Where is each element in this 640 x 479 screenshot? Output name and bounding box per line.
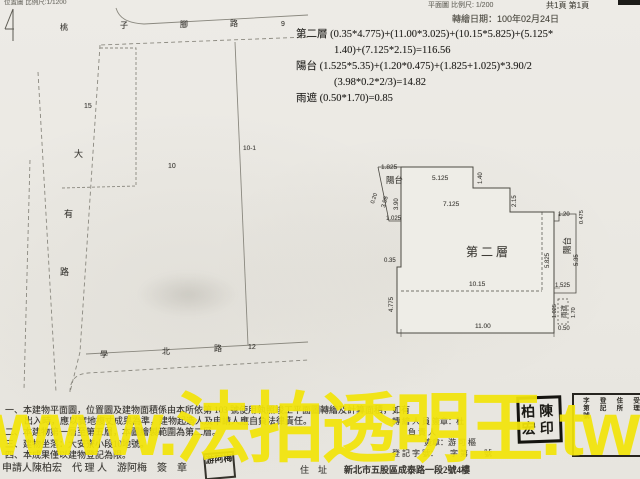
site-plan-label: 9 xyxy=(281,21,285,28)
scan-smudge xyxy=(138,272,238,317)
site-plan-label: 10-1 xyxy=(243,146,256,153)
dimension-label: 0.50 xyxy=(558,326,570,332)
dimension-label: 2.15 xyxy=(512,195,518,207)
dimension-label: 1.20 xyxy=(558,212,570,218)
dimension-label: 4.775 xyxy=(389,297,395,312)
transcribe-date: 轉繪日期：100年02月24日 xyxy=(452,15,559,24)
dimension-label: 7.125 xyxy=(443,202,459,209)
dimension-label: 5.125 xyxy=(432,176,448,183)
dimension-label: 1.825 xyxy=(381,165,397,172)
dimension-label: 1.025 xyxy=(386,216,401,222)
site-plan-scale: 位置圖 比例尺:1/1200 xyxy=(4,0,67,7)
site-plan-label: 桃 xyxy=(60,24,68,32)
dimension-label: 1.025 xyxy=(553,304,559,318)
site-plan-label: 腳 xyxy=(180,21,188,29)
dimension-label: 5.825 xyxy=(545,253,551,268)
floor-plan-scale: 平面圖 比例尺: 1/200 xyxy=(428,2,493,9)
dimension-label: 1.525 xyxy=(555,283,570,289)
watermark: www.法拍透明王.tw xyxy=(0,392,637,468)
site-plan-label: 北 xyxy=(162,348,170,356)
balcony-right-label: 陽台 xyxy=(563,237,572,254)
dimension-label: 10.15 xyxy=(469,282,485,289)
dimension-label: 5.35 xyxy=(574,254,580,266)
scanned-survey-document: 位置圖 比例尺:1/1200 平面圖 比例尺: 1/200 共1頁 第1頁 轉繪… xyxy=(0,0,640,479)
site-plan-label: 大 xyxy=(74,150,83,159)
site-plan-label: 有 xyxy=(64,210,73,219)
site-plan-label: 學 xyxy=(100,351,108,359)
calculation-line: 第二層 (0.35*4.775)+(11.00*3.025)+(10.15*5.… xyxy=(296,30,553,41)
site-plan-label: 路 xyxy=(60,268,69,277)
dimension-label: 0.35 xyxy=(384,258,396,264)
balcony-left-label: 陽台 xyxy=(386,176,403,185)
room-label: 第二層 xyxy=(466,246,511,258)
dimension-label: 1.70 xyxy=(572,307,578,318)
calculation-line: (3.98*0.2*2/3)=14.82 xyxy=(334,78,426,89)
page-indicator: 共1頁 第1頁 xyxy=(546,2,589,10)
dimension-label: 3.90 xyxy=(394,198,400,210)
scan-artifact xyxy=(618,0,640,5)
dimension-label: 1.40 xyxy=(478,172,484,184)
site-plan-label: 12 xyxy=(248,344,256,351)
site-plan-drawing xyxy=(24,8,308,392)
north-arrow-icon xyxy=(5,9,14,41)
calculation-line: 1.40)+(7.125*2.15)=116.56 xyxy=(334,46,450,57)
canopy-label: 雨遮 xyxy=(562,305,569,318)
calculation-line: 陽台 (1.525*5.35)+(1.20*0.475)+(1.825+1.02… xyxy=(296,62,532,73)
dimension-label: 0.475 xyxy=(580,210,586,224)
site-plan-label: 子 xyxy=(120,22,128,30)
site-plan-label: 10 xyxy=(168,163,176,170)
site-plan-label: 路 xyxy=(214,345,222,353)
site-plan-label: 15 xyxy=(84,103,92,110)
dimension-label: 11.00 xyxy=(475,324,491,331)
site-plan-label: 路 xyxy=(230,20,238,28)
calculation-line: 雨遮 (0.50*1.70)=0.85 xyxy=(296,94,393,105)
